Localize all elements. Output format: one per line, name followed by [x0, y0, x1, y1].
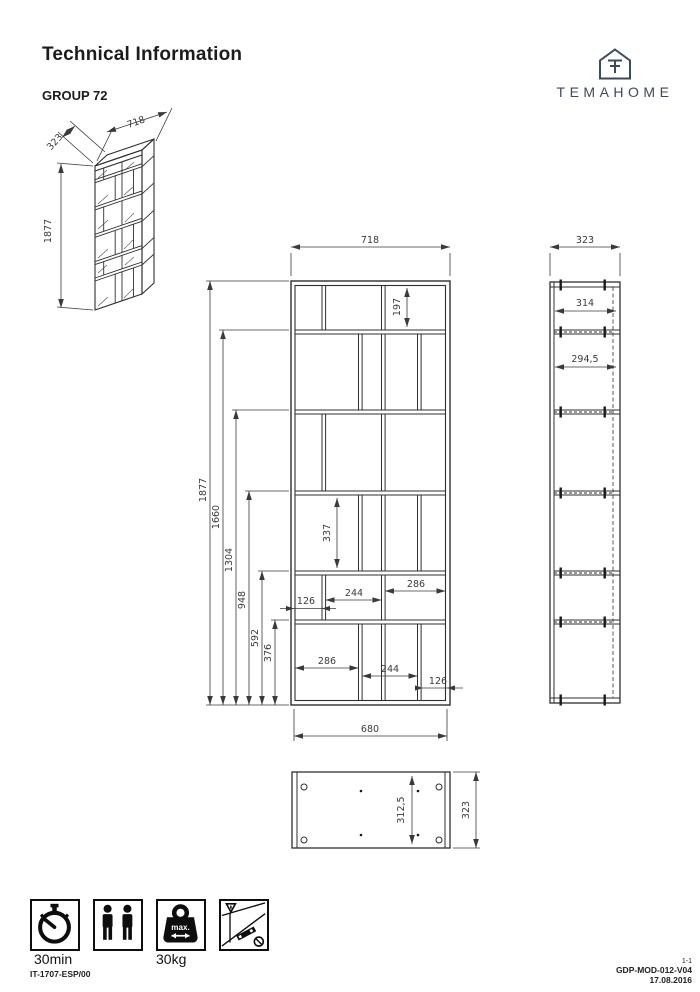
- front-dim-h376: 376: [263, 644, 274, 662]
- front-view: [291, 281, 450, 705]
- assembly-time-icon: [30, 899, 80, 951]
- front-dim-top-width: 718: [361, 235, 379, 246]
- icon-labels: 30min 30kg: [30, 951, 310, 967]
- front-dim-h1877: 1877: [198, 478, 209, 502]
- front-dim-row4: 337: [322, 524, 333, 542]
- max-weight-label: 30kg: [156, 951, 186, 967]
- max-weight-inner-label: max.: [171, 923, 189, 932]
- front-dim-r6-126: 126: [429, 676, 447, 687]
- bottom-dim-outer: 323: [461, 801, 472, 819]
- document-reference: IT-1707-ESP/00: [30, 969, 90, 979]
- iso-dim-depth: 323: [45, 132, 65, 153]
- side-dim-314: 314: [576, 298, 594, 309]
- assembly-icons: max.: [30, 899, 269, 951]
- dowel-marks: [360, 790, 420, 837]
- front-dim-r5-286: 286: [407, 579, 425, 590]
- front-dim-r5-244: 244: [345, 588, 363, 599]
- iso-dim-width: 718: [126, 114, 147, 130]
- iso-dim-height: 1877: [43, 219, 54, 243]
- assembly-time-label: 30min: [34, 951, 72, 967]
- front-dim-h1304: 1304: [224, 548, 235, 572]
- document-code: GDP-MOD-012-V04: [616, 965, 692, 975]
- front-dim-r5-126: 126: [297, 596, 315, 607]
- fastener-marks: [560, 280, 606, 706]
- front-dim-h592: 592: [250, 629, 261, 647]
- front-dim-h1660: 1660: [211, 505, 222, 529]
- bottom-dim-inner: 312,5: [396, 796, 407, 823]
- front-dim-row1: 197: [392, 298, 403, 316]
- side-view: [550, 280, 620, 706]
- iso-dimensions: [57, 108, 172, 310]
- front-dim-h948: 948: [237, 591, 248, 609]
- technical-drawing: 1877 323 718: [0, 0, 700, 992]
- side-dim-top: 323: [576, 235, 594, 246]
- two-person-icon: [93, 899, 143, 951]
- technical-sheet: Technical Information GROUP 72 TEMAHOME: [0, 0, 700, 992]
- front-dim-r6-244: 244: [381, 664, 399, 675]
- wall-fixing-warning-icon: [219, 899, 269, 951]
- max-weight-icon: max.: [156, 899, 206, 951]
- bottom-view: [292, 772, 450, 848]
- document-date: 17.08.2016: [616, 975, 692, 985]
- front-dim-bottom-width: 680: [361, 724, 379, 735]
- isometric-view: 1877 323 718: [43, 108, 172, 310]
- side-dim-294-5: 294,5: [571, 354, 598, 365]
- page-number: 1-1: [616, 958, 692, 965]
- document-meta: 1-1 GDP-MOD-012-V04 17.08.2016: [616, 958, 692, 985]
- front-dim-r6-286: 286: [318, 656, 336, 667]
